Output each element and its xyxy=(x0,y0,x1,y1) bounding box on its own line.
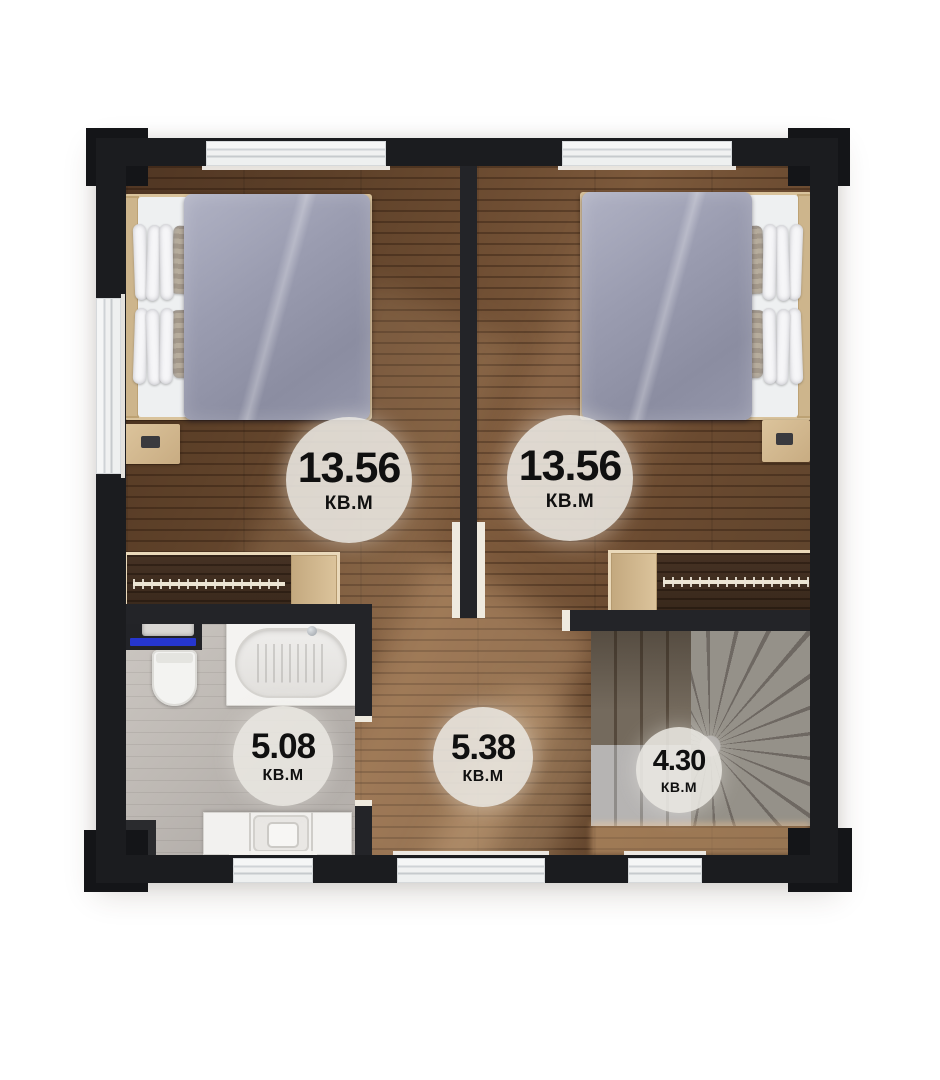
window-top-bedroom-left xyxy=(206,141,386,166)
window-sill xyxy=(121,294,125,478)
area-badge-staircase: 4.30 КВ.М xyxy=(636,727,722,813)
door-jamb-bathroom-top xyxy=(355,716,372,722)
area-badge-bedroom-left: 13.56 КВ.М xyxy=(286,417,412,543)
floor-plan-page: { "floor_plan": { "unit_label": "КВ.М", … xyxy=(0,0,940,1080)
wall-bedroom-right-bottom xyxy=(570,610,810,631)
window-sill xyxy=(558,166,736,170)
nightstand-left xyxy=(124,424,180,464)
counter-divider xyxy=(311,812,313,855)
bed-left-duvet xyxy=(184,194,370,420)
bathtub-faucet xyxy=(307,626,317,636)
window-sill xyxy=(202,166,390,170)
laundry-counter xyxy=(203,812,352,855)
window-sill xyxy=(229,851,317,855)
pillow xyxy=(775,309,791,385)
wall-left xyxy=(96,138,126,883)
blue-towel xyxy=(130,638,196,646)
pillow xyxy=(788,308,804,384)
wall-bathroom-top xyxy=(126,604,372,624)
bathtub-basin xyxy=(235,628,347,698)
area-value: 13.56 xyxy=(298,447,401,490)
wall-bathroom-right-upper xyxy=(355,604,372,722)
window-sill xyxy=(624,851,706,855)
pillow xyxy=(159,224,173,300)
area-unit: КВ.М xyxy=(462,769,503,785)
window-bottom-stairs xyxy=(628,858,702,883)
wardrobe-right-side-panel xyxy=(611,553,657,613)
counter-divider xyxy=(249,812,251,855)
area-unit: КВ.М xyxy=(661,780,697,794)
area-unit: КВ.М xyxy=(262,768,303,784)
area-unit: КВ.М xyxy=(546,492,594,511)
bed-left xyxy=(124,194,372,420)
wall-central xyxy=(460,166,477,618)
wardrobe-right-rail xyxy=(663,580,809,584)
pillow xyxy=(762,308,776,384)
door-jamb-stairs xyxy=(562,610,570,631)
bed-right-duvet xyxy=(582,192,752,420)
pillow xyxy=(762,224,776,300)
window-bottom-hallway xyxy=(397,858,545,883)
pillow xyxy=(159,308,173,384)
wall-bathroom-right-lower xyxy=(355,800,372,855)
pillow xyxy=(788,224,804,300)
bathtub xyxy=(226,620,356,706)
area-value: 4.30 xyxy=(653,747,705,776)
wall-right xyxy=(810,138,838,883)
area-unit: КВ.М xyxy=(325,494,373,513)
area-badge-bathroom: 5.08 КВ.М xyxy=(233,706,333,806)
washing-machine xyxy=(253,815,309,852)
area-value: 5.08 xyxy=(251,729,315,764)
wardrobe-right xyxy=(608,550,818,616)
pillow xyxy=(775,225,791,301)
nightstand-right xyxy=(762,420,810,462)
door-jamb-bathroom-bottom xyxy=(355,800,372,806)
bed-right xyxy=(580,192,812,420)
window-top-bedroom-right xyxy=(562,141,732,166)
area-badge-bedroom-right: 13.56 КВ.М xyxy=(507,415,633,541)
toilet xyxy=(152,650,197,706)
wardrobe-left-rail xyxy=(133,582,285,586)
door-jamb-bedroom-left xyxy=(452,522,460,618)
window-sill xyxy=(393,851,549,855)
door-jamb-bedroom-right xyxy=(477,522,485,618)
window-left-wall xyxy=(96,298,121,474)
area-value: 5.38 xyxy=(451,730,515,765)
area-value: 13.56 xyxy=(519,445,622,488)
window-bottom-bathroom xyxy=(233,858,313,883)
area-badge-hallway: 5.38 КВ.М xyxy=(433,707,533,807)
